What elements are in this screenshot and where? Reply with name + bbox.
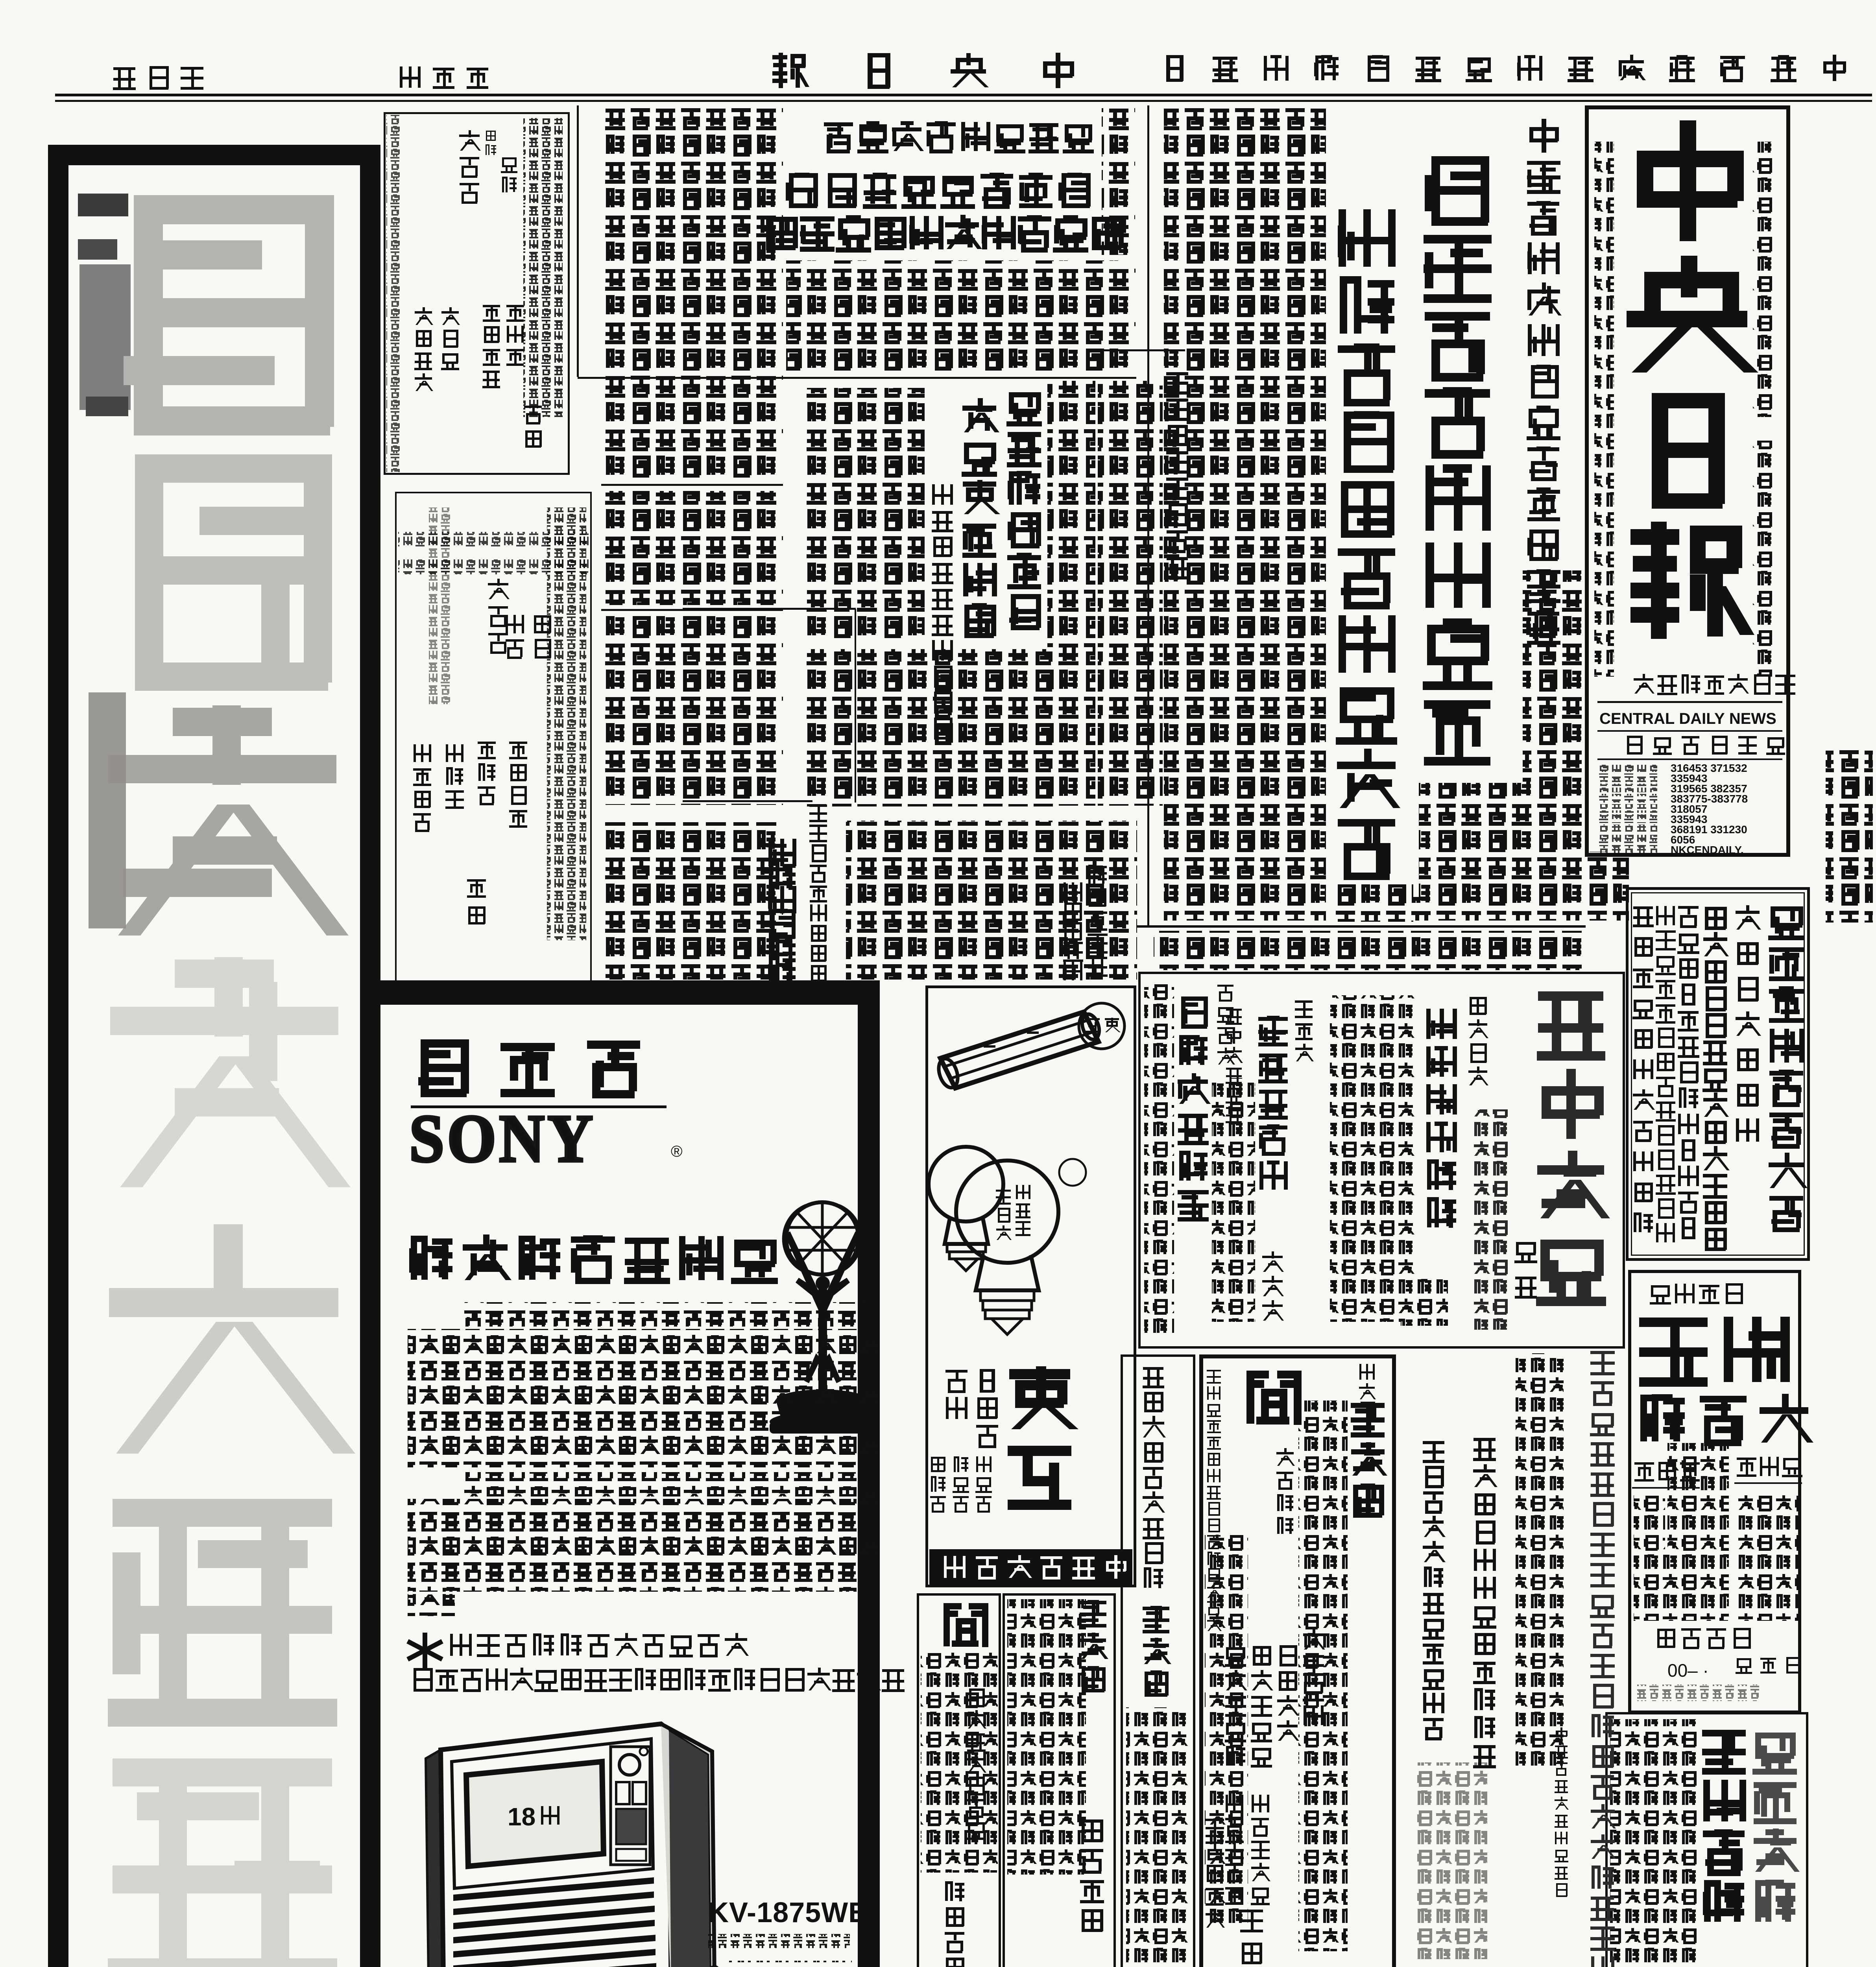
- svg-text:18: 18: [508, 1803, 535, 1831]
- svg-text:®: ®: [671, 1143, 682, 1160]
- svg-text:NKCENDAILY.: NKCENDAILY.: [1671, 844, 1744, 856]
- svg-text:SONY: SONY: [409, 1101, 596, 1176]
- svg-text:CENTRAL DAILY NEWS: CENTRAL DAILY NEWS: [1599, 710, 1776, 727]
- svg-text:KV-1875WB: KV-1875WB: [708, 1897, 869, 1928]
- svg-text:00– ·: 00– ·: [1667, 1660, 1709, 1681]
